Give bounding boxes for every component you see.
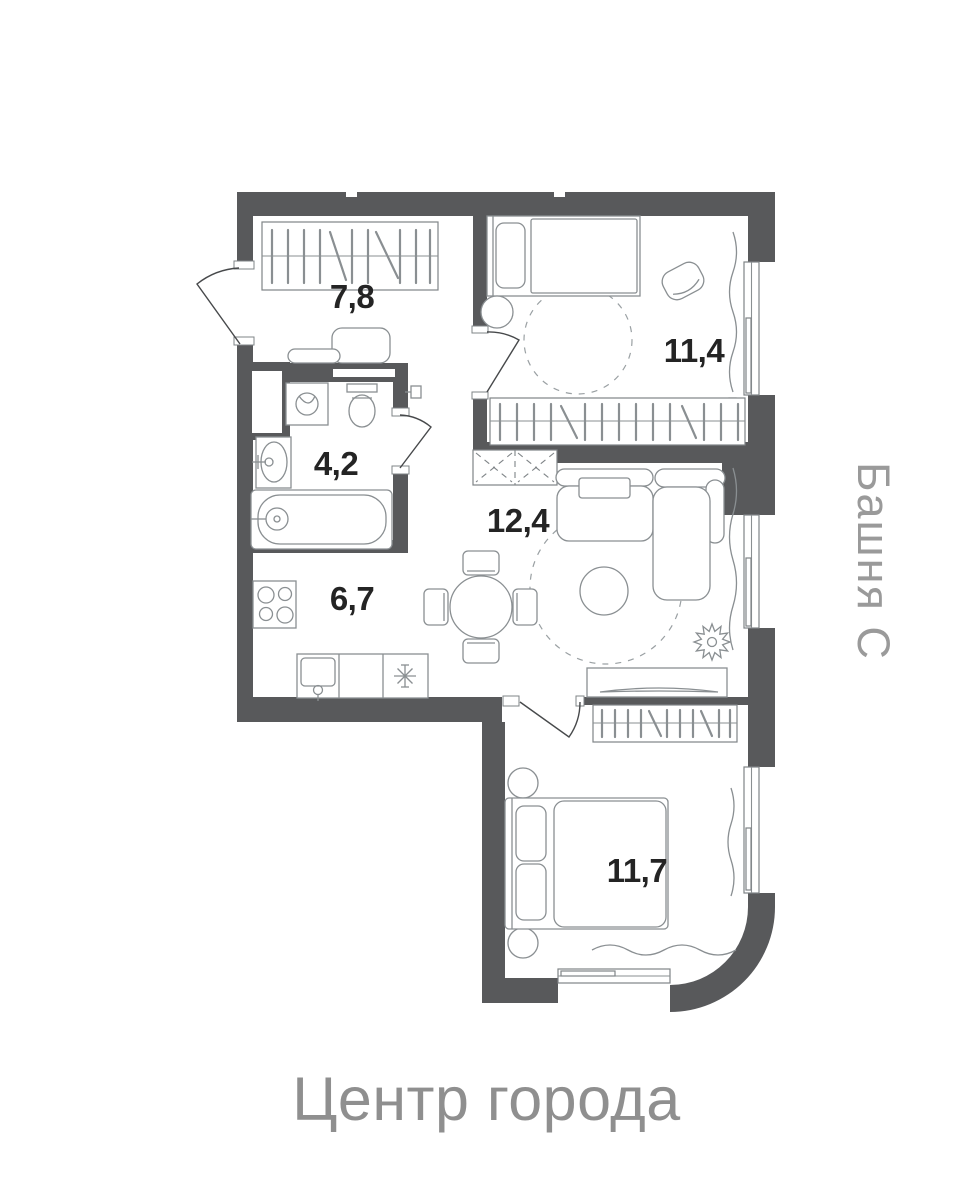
stove — [253, 581, 296, 628]
entrance-door — [197, 261, 254, 345]
window-bedroom-1 — [744, 262, 759, 395]
plant — [694, 624, 730, 660]
tower-label: Башня С — [847, 462, 899, 661]
bedroom-1-furniture — [481, 216, 745, 445]
pouf — [658, 258, 707, 303]
bed-single — [487, 216, 640, 296]
floor-plan-canvas: 7,8 11,4 4,2 12,4 6,7 11,7 Башня С Центр… — [0, 0, 973, 1200]
living-room-furniture — [424, 450, 730, 697]
area-bedroom-2: 11,7 — [607, 852, 667, 889]
toilet — [347, 384, 377, 427]
bedside-stool — [481, 296, 513, 328]
area-bathroom: 4,2 — [314, 445, 359, 482]
ventilation-shaft — [473, 450, 557, 485]
bedroom-1-wardrobe — [490, 398, 745, 445]
hall-wall-niche — [333, 369, 395, 377]
dining-set — [424, 551, 537, 663]
area-kitchen: 6,7 — [330, 580, 374, 617]
area-bedroom-1: 11,4 — [664, 332, 726, 369]
tv-console — [587, 668, 727, 697]
pillow-1 — [516, 806, 546, 861]
curved-corner-wall — [670, 907, 775, 1012]
curtain-bedroom-1 — [730, 232, 737, 392]
pillow — [496, 223, 525, 288]
bedroom-2-furniture — [505, 705, 737, 958]
nightstand-bottom — [508, 928, 538, 958]
bathroom-shaft-niche — [252, 371, 282, 433]
hallway-console — [332, 328, 390, 363]
pillow-2 — [516, 864, 546, 920]
floor-plan: 7,8 11,4 4,2 12,4 6,7 11,7 — [0, 0, 973, 1200]
bathroom-sink — [252, 437, 291, 488]
bathroom-door — [392, 408, 431, 474]
area-living: 12,4 — [487, 502, 550, 539]
bedroom-2-wardrobe — [593, 705, 737, 742]
window-bedroom-2-bottom — [558, 969, 670, 983]
curtain-bedroom-2-horizontal — [592, 945, 736, 955]
rug-bedroom-1 — [524, 286, 632, 394]
washing-machine — [286, 383, 328, 425]
area-hallway: 7,8 — [330, 278, 375, 315]
curtain-bedroom-2-vertical — [728, 788, 734, 896]
bedroom-1-door — [472, 326, 519, 399]
window-bedroom-2-right — [744, 767, 759, 893]
bathtub — [251, 490, 392, 549]
district-label: Центр города — [0, 1064, 973, 1134]
hallway-bench — [288, 349, 340, 363]
nightstand-top — [508, 768, 538, 798]
kitchen-counter — [297, 654, 428, 701]
coffee-table — [580, 567, 628, 615]
bedroom-2-door — [503, 696, 584, 737]
sofa — [556, 469, 725, 600]
window-living-room — [744, 515, 759, 628]
dining-table — [450, 576, 512, 638]
